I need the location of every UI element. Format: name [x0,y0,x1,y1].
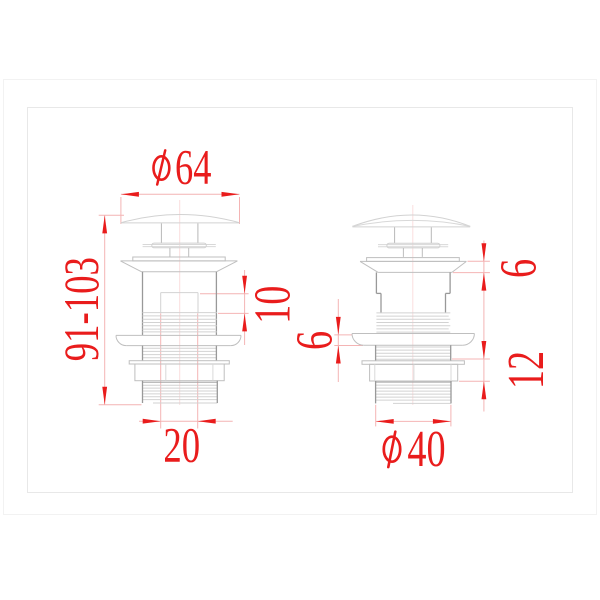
svg-text:20: 20 [163,418,200,473]
svg-text:91-103: 91-103 [55,257,110,361]
svg-text:64: 64 [175,140,212,195]
svg-text:40: 40 [407,419,445,477]
svg-text:6: 6 [285,331,343,350]
svg-text:10: 10 [243,286,301,324]
svg-text:6: 6 [489,259,547,278]
svg-text:12: 12 [496,351,554,389]
